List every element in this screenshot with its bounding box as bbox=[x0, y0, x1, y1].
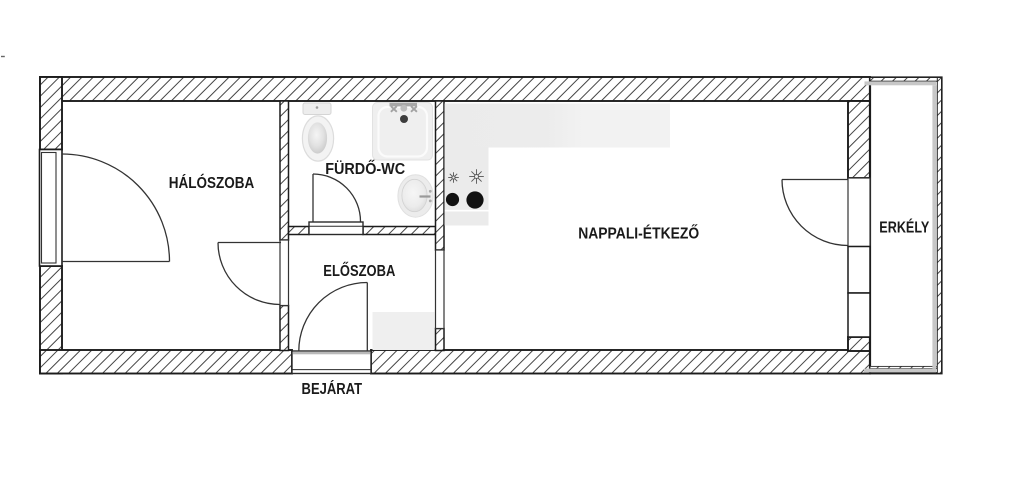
svg-text:FÜRDŐ-WC: FÜRDŐ-WC bbox=[325, 159, 405, 178]
svg-text:NAPPALI-ÉTKEZŐ: NAPPALI-ÉTKEZŐ bbox=[578, 224, 699, 243]
svg-text:HÁLÓSZOBA: HÁLÓSZOBA bbox=[169, 173, 255, 192]
svg-text:ERKÉLY: ERKÉLY bbox=[879, 218, 929, 237]
svg-text:ELŐSZOBA: ELŐSZOBA bbox=[323, 261, 395, 280]
svg-text:BEJÁRAT: BEJÁRAT bbox=[302, 379, 363, 398]
